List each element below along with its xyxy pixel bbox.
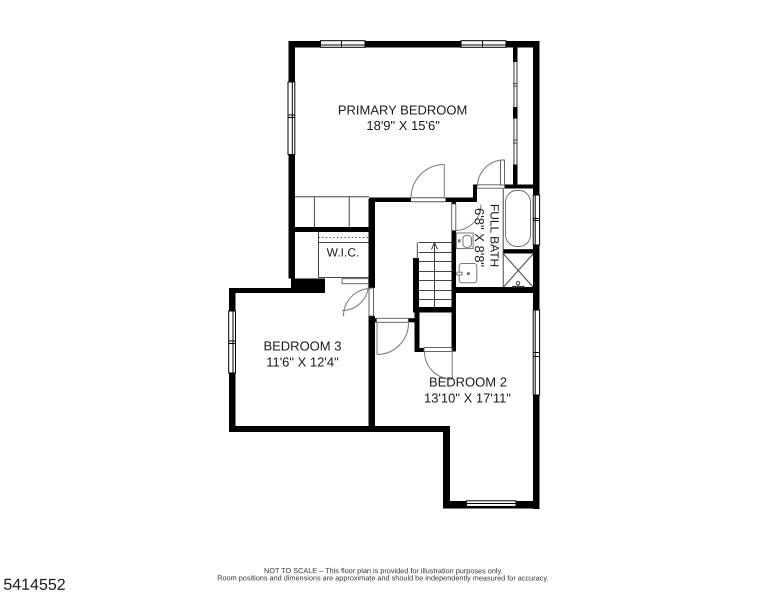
- svg-text:BEDROOM 3: BEDROOM 3: [263, 338, 341, 353]
- svg-text:FULL BATH: FULL BATH: [487, 204, 501, 267]
- svg-text:6'8" X 8'8": 6'8" X 8'8": [472, 208, 487, 267]
- svg-text:Room positions and dimensions: Room positions and dimensions are approx…: [217, 573, 548, 582]
- svg-text:11'6" X 12'4": 11'6" X 12'4": [266, 354, 339, 369]
- svg-text:18'9" X 15'6": 18'9" X 15'6": [366, 118, 440, 133]
- svg-text:5414552: 5414552: [3, 577, 65, 594]
- svg-text:13'10" X 17'11": 13'10" X 17'11": [424, 391, 511, 406]
- svg-text:BEDROOM 2: BEDROOM 2: [429, 375, 507, 390]
- svg-text:W.I.C.: W.I.C.: [327, 245, 360, 259]
- svg-text:PRIMARY BEDROOM: PRIMARY BEDROOM: [338, 102, 468, 117]
